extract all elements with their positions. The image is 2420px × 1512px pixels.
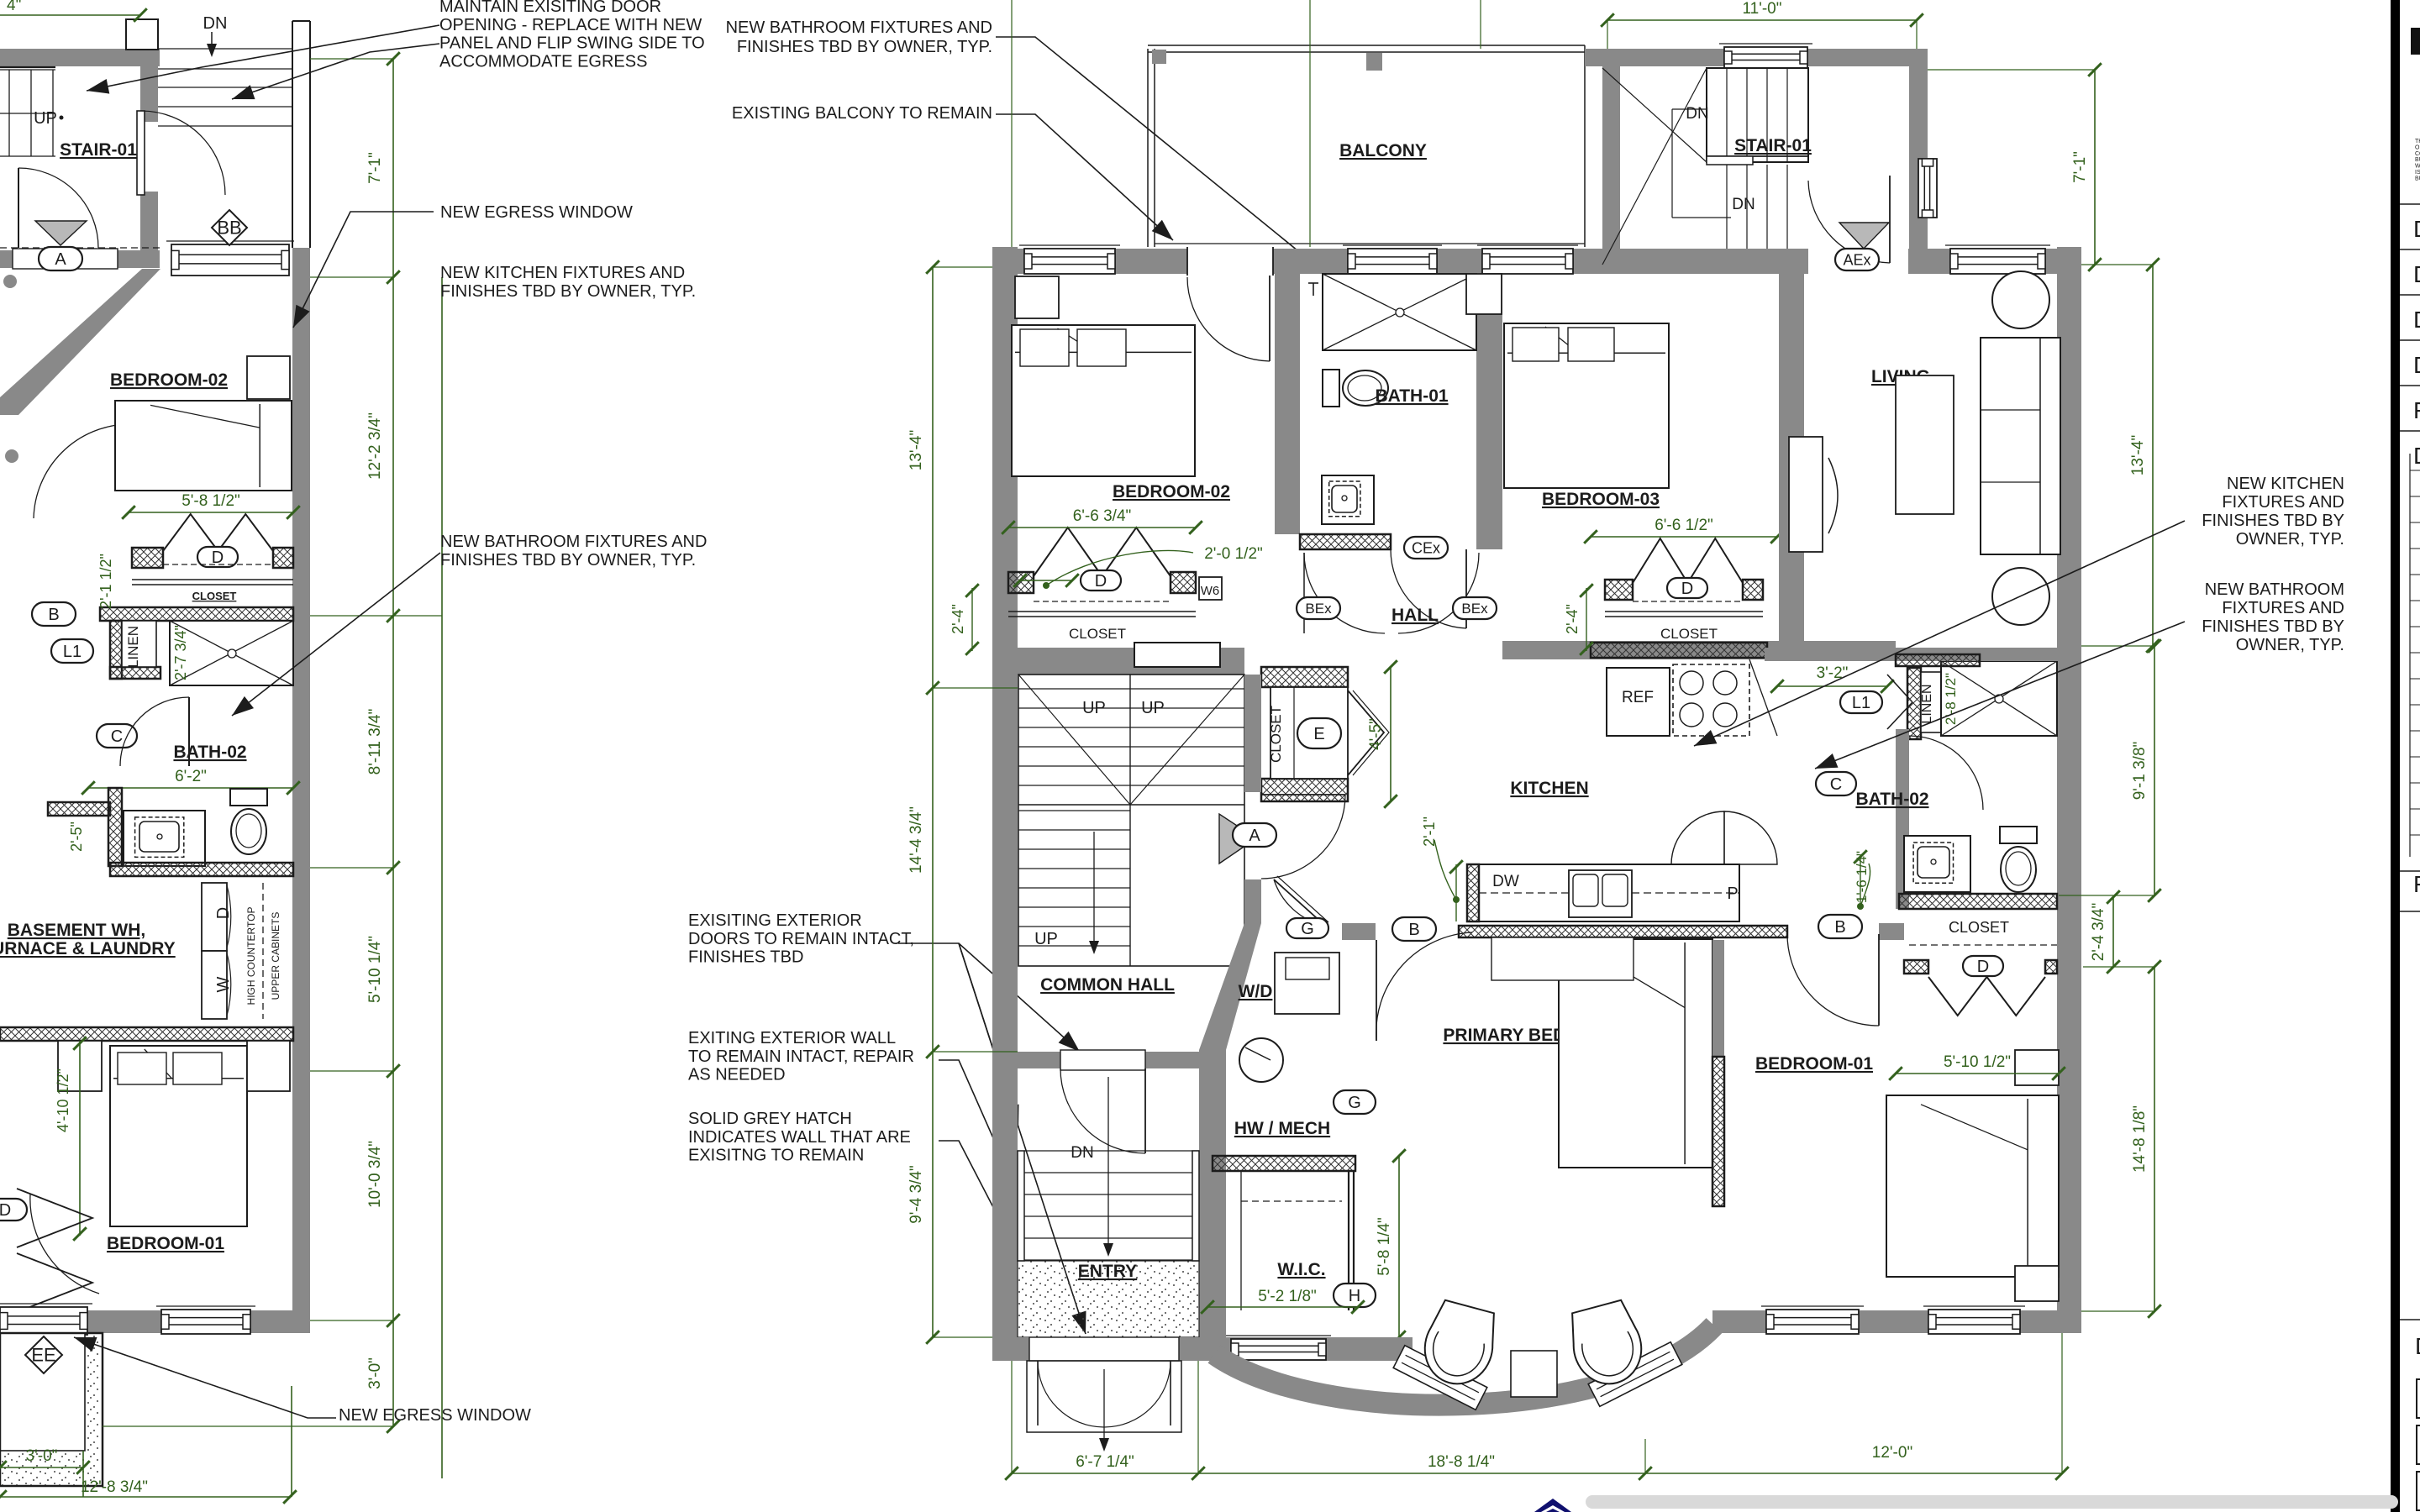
svg-text:SOLID GREY HATCH: SOLID GREY HATCH [688, 1110, 852, 1128]
svg-text:5'-10 1/4": 5'-10 1/4" [366, 936, 384, 1003]
svg-text:2'-5": 2'-5" [68, 822, 85, 852]
svg-text:CLOSET: CLOSET [1660, 626, 1718, 642]
svg-text:18'-8 1/4": 18'-8 1/4" [1428, 1453, 1495, 1471]
svg-text:D: D [1095, 572, 1107, 591]
svg-text:F: F [2413, 871, 2420, 897]
svg-text:2'-1 1/2": 2'-1 1/2" [97, 554, 114, 609]
svg-text:A: A [1249, 827, 1260, 845]
svg-text:P: P [1727, 885, 1738, 903]
svg-text:2'-1": 2'-1" [1421, 816, 1438, 847]
svg-text:CLOSET: CLOSET [192, 590, 237, 602]
svg-text:INDICATES WALL THAT ARE: INDICATES WALL THAT ARE [688, 1128, 911, 1147]
svg-text:CLOSET: CLOSET [1069, 626, 1126, 642]
svg-text:7'-1": 7'-1" [366, 152, 384, 184]
svg-text:TH: TH [2415, 139, 2420, 144]
svg-text:9'-1 3/8": 9'-1 3/8" [2131, 742, 2149, 801]
svg-text:8'-11 3/4": 8'-11 3/4" [366, 709, 384, 775]
svg-text:H: H [1349, 1287, 1360, 1305]
svg-text:BATH-02: BATH-02 [1855, 790, 1928, 809]
svg-text:BATH-01: BATH-01 [1375, 386, 1448, 406]
svg-text:6'-7 1/4": 6'-7 1/4" [1076, 1453, 1134, 1471]
svg-text:NEW BATHROOM: NEW BATHROOM [2205, 580, 2344, 599]
svg-text:BU: BU [2415, 157, 2420, 163]
svg-text:3'-0": 3'-0" [366, 1357, 384, 1389]
svg-text:L1: L1 [63, 643, 82, 661]
svg-text:DN: DN [203, 14, 228, 33]
svg-text:UP: UP [1034, 930, 1058, 948]
svg-text:LINEN: LINEN [125, 626, 141, 668]
svg-text:D: D [2415, 1333, 2420, 1359]
svg-text:AEx: AEx [1843, 251, 1870, 268]
svg-text:4'-10 1/2": 4'-10 1/2" [55, 1068, 71, 1132]
svg-text:D: D [2413, 352, 2420, 378]
svg-text:C: C [111, 727, 123, 746]
svg-text:CEx: CEx [1412, 539, 1440, 556]
svg-text:2'-7 3/4": 2'-7 3/4" [172, 625, 189, 680]
svg-text:12'-8 3/4": 12'-8 3/4" [81, 1478, 148, 1496]
svg-text:2'-4": 2'-4" [950, 604, 966, 634]
svg-text:NEW KITCHEN FIXTURES AND: NEW KITCHEN FIXTURES AND [440, 264, 685, 282]
svg-text:5'-8 1/2": 5'-8 1/2" [181, 492, 240, 510]
svg-text:BATH-02: BATH-02 [173, 743, 246, 762]
svg-text:3'-2": 3'-2" [1817, 664, 1849, 682]
svg-text:5'-10 1/2": 5'-10 1/2" [1944, 1053, 2011, 1071]
svg-text:OF: OF [2415, 144, 2420, 150]
svg-text:NEW KITCHEN: NEW KITCHEN [2227, 475, 2344, 493]
svg-text:KITCHEN: KITCHEN [1510, 779, 1588, 798]
svg-text:12'-0": 12'-0" [1872, 1444, 1912, 1462]
svg-text:BALCONY: BALCONY [1339, 141, 1427, 160]
svg-text:L1: L1 [1852, 694, 1870, 712]
svg-text:W: W [214, 976, 233, 992]
svg-text:D: D [2413, 443, 2420, 469]
svg-text:D: D [1977, 958, 1989, 976]
svg-text:D: D [2413, 261, 2420, 287]
svg-text:D: D [1681, 580, 1693, 598]
svg-text:DN: DN [1071, 1144, 1093, 1162]
svg-text:F: F [2413, 397, 2420, 423]
svg-text:3'-0": 3'-0" [26, 1447, 58, 1465]
svg-text:OWNER, TYP.: OWNER, TYP. [2236, 636, 2344, 654]
svg-text:STAIR-01: STAIR-01 [60, 140, 137, 160]
svg-text:UP: UP [1082, 699, 1106, 717]
svg-text:DN: DN [1686, 105, 1708, 123]
svg-text:7'-1": 7'-1" [2071, 151, 2089, 183]
svg-text:W.I.C.: W.I.C. [1277, 1260, 1325, 1279]
svg-text:FINISHES TBD BY: FINISHES TBD BY [2202, 512, 2344, 530]
svg-text:BASEMENT WH,: BASEMENT WH, [8, 921, 146, 940]
svg-text:CLOSET: CLOSET [1268, 706, 1284, 763]
svg-text:D: D [214, 907, 233, 919]
svg-text:BEDROOM-03: BEDROOM-03 [1542, 490, 1660, 509]
svg-text:9'-4 3/4": 9'-4 3/4" [907, 1165, 925, 1224]
svg-text:UP: UP [34, 109, 57, 128]
svg-text:EXITING EXTERIOR WALL: EXITING EXTERIOR WALL [688, 1029, 896, 1047]
svg-text:BEDROOM-02: BEDROOM-02 [110, 370, 228, 390]
svg-text:G: G [1301, 920, 1314, 938]
svg-text:10'-0 3/4": 10'-0 3/4" [366, 1141, 384, 1208]
svg-text:B: B [48, 606, 59, 624]
svg-text:4'-5": 4'-5" [1367, 718, 1385, 750]
svg-text:D: D [2413, 307, 2420, 333]
svg-text:BEDROOM-01: BEDROOM-01 [1755, 1054, 1873, 1074]
svg-text:4": 4" [7, 0, 21, 14]
svg-text:13'-4": 13'-4" [907, 430, 925, 470]
svg-text:11'-0": 11'-0" [1743, 0, 1782, 18]
svg-text:NEW EGRESS WINDOW: NEW EGRESS WINDOW [339, 1406, 531, 1425]
svg-text:UPPER CABINETS: UPPER CABINETS [270, 912, 281, 1000]
svg-text:A: A [55, 250, 66, 269]
svg-text:E: E [1313, 725, 1324, 743]
svg-text:MAINTAIN EXISITING DOOR: MAINTAIN EXISITING DOOR [439, 0, 661, 16]
svg-text:12'-2 3/4": 12'-2 3/4" [366, 412, 384, 480]
svg-text:HW / MECH: HW / MECH [1234, 1119, 1330, 1138]
svg-text:AS NEEDED: AS NEEDED [688, 1066, 786, 1084]
svg-text:6'-2": 6'-2" [175, 768, 207, 785]
svg-text:COMMON HALL: COMMON HALL [1040, 975, 1175, 995]
svg-text:G: G [1348, 1094, 1361, 1112]
svg-text:6'-6 1/2": 6'-6 1/2" [1655, 517, 1713, 534]
svg-text:PANEL AND FLIP SWING SIDE TO: PANEL AND FLIP SWING SIDE TO [439, 34, 705, 53]
svg-text:14'-8 1/8": 14'-8 1/8" [2131, 1105, 2149, 1173]
svg-text:HIGH COUNTERTOP: HIGH COUNTERTOP [245, 907, 257, 1005]
svg-text:NEW BATHROOM FIXTURES AND: NEW BATHROOM FIXTURES AND [440, 533, 707, 551]
svg-text:HALL: HALL [1391, 606, 1439, 625]
svg-text:D: D [2413, 216, 2420, 242]
svg-text:14'-4 3/4": 14'-4 3/4" [907, 806, 925, 874]
svg-text:ENTRY: ENTRY [1078, 1262, 1137, 1281]
svg-text:EXISITING EXTERIOR: EXISITING EXTERIOR [688, 911, 862, 930]
svg-text:REF: REF [1622, 689, 1654, 706]
svg-text:EE: EE [31, 1344, 55, 1365]
svg-text:FINISHES TBD: FINISHES TBD [688, 948, 803, 967]
svg-text:BEDROOM-02: BEDROOM-02 [1113, 482, 1230, 501]
svg-text:BEDROOM-01: BEDROOM-01 [107, 1234, 224, 1253]
svg-text:5'-2 1/8": 5'-2 1/8" [1258, 1288, 1317, 1305]
svg-text:DN: DN [1732, 196, 1754, 213]
svg-text:B: B [1408, 921, 1419, 939]
svg-text:OWNER, TYP.: OWNER, TYP. [2236, 530, 2344, 549]
svg-text:EXISITNG TO REMAIN: EXISITNG TO REMAIN [688, 1147, 864, 1165]
svg-text:FIXTURES AND: FIXTURES AND [2222, 599, 2344, 617]
svg-text:FURNACE & LAUNDRY: FURNACE & LAUNDRY [0, 939, 176, 958]
svg-text:FINISHES TBD BY OWNER, TYP.: FINISHES TBD BY OWNER, TYP. [440, 282, 696, 301]
svg-text:FINISHES TBD BY OWNER, TYP.: FINISHES TBD BY OWNER, TYP. [737, 38, 992, 56]
svg-text:2'-0 1/2": 2'-0 1/2" [1204, 545, 1263, 563]
svg-text:W/D: W/D [1239, 982, 1273, 1001]
svg-text:NEW BATHROOM FIXTURES AND: NEW BATHROOM FIXTURES AND [726, 18, 992, 37]
svg-text:6'-6 3/4": 6'-6 3/4" [1073, 507, 1132, 525]
svg-text:BB: BB [217, 217, 241, 238]
svg-text:BU: BU [2415, 176, 2420, 181]
svg-text:FINISHES TBD BY OWNER, TYP.: FINISHES TBD BY OWNER, TYP. [440, 551, 696, 570]
svg-text:FIXTURES AND: FIXTURES AND [2222, 493, 2344, 512]
svg-text:LINEN: LINEN [1920, 684, 1934, 723]
svg-text:BEx: BEx [1305, 601, 1332, 617]
svg-text:WH: WH [2415, 164, 2420, 170]
svg-text:13'-4": 13'-4" [2129, 435, 2147, 475]
svg-text:EXISTING BALCONY TO REMAIN: EXISTING BALCONY TO REMAIN [732, 104, 992, 123]
svg-text:IS: IS [2415, 170, 2420, 176]
svg-text:FINISHES TBD BY: FINISHES TBD BY [2202, 617, 2344, 636]
svg-text:CO: CO [2415, 151, 2420, 157]
svg-text:C: C [1830, 775, 1842, 794]
svg-text:2'-4": 2'-4" [1564, 604, 1581, 634]
svg-text:STAIR-01: STAIR-01 [1734, 136, 1812, 155]
svg-text:ACCOMMODATE EGRESS: ACCOMMODATE EGRESS [439, 52, 647, 71]
svg-text:DOORS TO REMAIN INTACT,: DOORS TO REMAIN INTACT, [688, 930, 914, 948]
svg-text:1'-6 1/4": 1'-6 1/4" [1854, 851, 1870, 903]
svg-text:TO REMAIN INTACT, REPAIR: TO REMAIN INTACT, REPAIR [688, 1047, 914, 1066]
svg-text:B: B [1834, 918, 1845, 937]
svg-text:5'-8 1/4": 5'-8 1/4" [1376, 1217, 1393, 1276]
svg-text:UP: UP [1141, 699, 1165, 717]
svg-text:BEx: BEx [1461, 601, 1488, 617]
svg-text:OPENING - REPLACE WITH NEW: OPENING - REPLACE WITH NEW [439, 16, 702, 34]
svg-text:DW: DW [1492, 873, 1519, 890]
svg-text:W6: W6 [1201, 584, 1220, 598]
svg-text:2'-4 3/4": 2'-4 3/4" [2090, 903, 2107, 962]
svg-text:CLOSET: CLOSET [1949, 919, 2009, 936]
svg-text:NEW EGRESS WINDOW: NEW EGRESS WINDOW [440, 203, 633, 222]
svg-text:D: D [0, 1201, 11, 1220]
